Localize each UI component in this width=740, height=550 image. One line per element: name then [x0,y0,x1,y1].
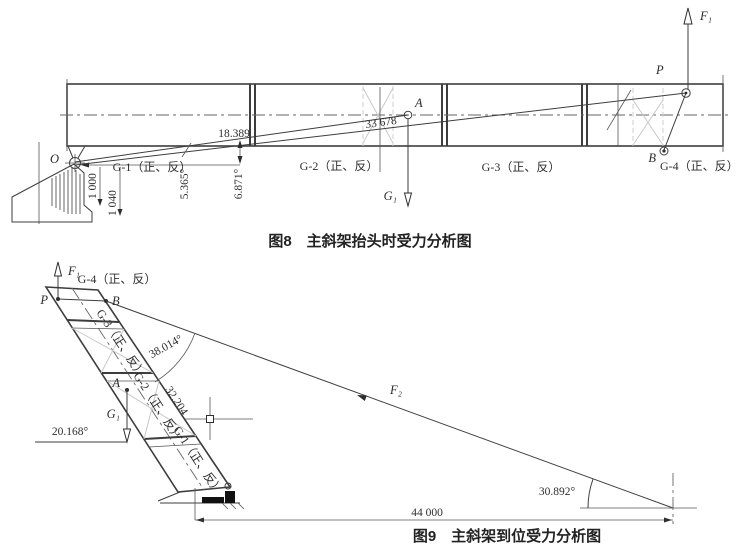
dim-1040: 1 040 [107,190,119,216]
figure8-caption: 图8 主斜架抬头时受力分析图 [268,232,471,250]
point-o-label: O [50,152,59,166]
point-p-label: P [655,63,664,77]
point-a-load: A G₁ [384,96,423,206]
ground-dimension: 44 000 30.892° [195,473,697,524]
frame-segment-labels: G-3（正、反） 32.204 G-2（正、反） G-1（正、反） [94,307,226,498]
dim-angle-6871: 6.871° [233,168,245,199]
dim-18389: 18.389 [218,128,250,140]
point-a-load: A G₁ 20.168° [35,376,131,442]
segment-g3-label: G-3（正、反） [482,160,561,174]
figure9-caption: 图9 主斜架到位受力分析图 [413,527,601,545]
pedestal-hatching [52,168,80,214]
f1-force-label: F₁ [699,9,712,23]
crosshair-target [185,397,253,440]
segment-g4-label: G-4（正、反） [660,159,739,173]
g1-force-label: G₁ [384,189,397,203]
base-pivot [158,483,244,509]
segment-g4-label: G-4（正、反） [78,272,157,286]
dim-angle-38014: 38.014° [147,333,185,361]
g1-force-label: G₁ [107,407,120,421]
f2-arrowhead [357,395,367,401]
beam-outline [60,75,730,152]
segment-g1-label: G-1（正、反） [113,160,192,174]
segment-g3-label: G-3（正、反） [94,307,149,381]
segment-g1-label: G-1（正、反） [171,424,226,498]
figure9-in-position-force-diagram: F₁ P B G-4（正、反） F₂ 38.014° G-3（正、反） 32.2… [0,258,740,550]
f1-arrowhead [684,8,692,24]
figure8-lifting-force-diagram: A G₁ F₁ P B 18.389 33 678 5.365° 6.871° … [0,0,740,258]
g1-arrowhead [124,429,131,442]
dim-1000: 1 000 [87,173,99,199]
g1-arrowhead [405,193,412,206]
point-p-label: P [39,293,48,307]
point-a-label: A [111,376,120,390]
f1-arrowhead [55,262,62,276]
dim-angle-30892: 30.892° [539,486,576,498]
segment-g2-label: G-2（正、反） [300,159,379,173]
point-a-label: A [414,96,423,110]
document-page: A G₁ F₁ P B 18.389 33 678 5.365° 6.871° … [0,0,740,550]
f2-force-label: F₂ [389,383,403,397]
segment-labels: G-1（正、反） G-2（正、反） G-3（正、反） G-4（正、反） [113,159,739,174]
f2-tie-line: F₂ 38.014° [106,301,673,508]
point-p-force: F₁ P B [648,8,712,165]
dim-44000: 44 000 [411,507,443,519]
point-b-label: B [648,151,656,165]
dim-angle-20168: 20.168° [52,426,89,438]
